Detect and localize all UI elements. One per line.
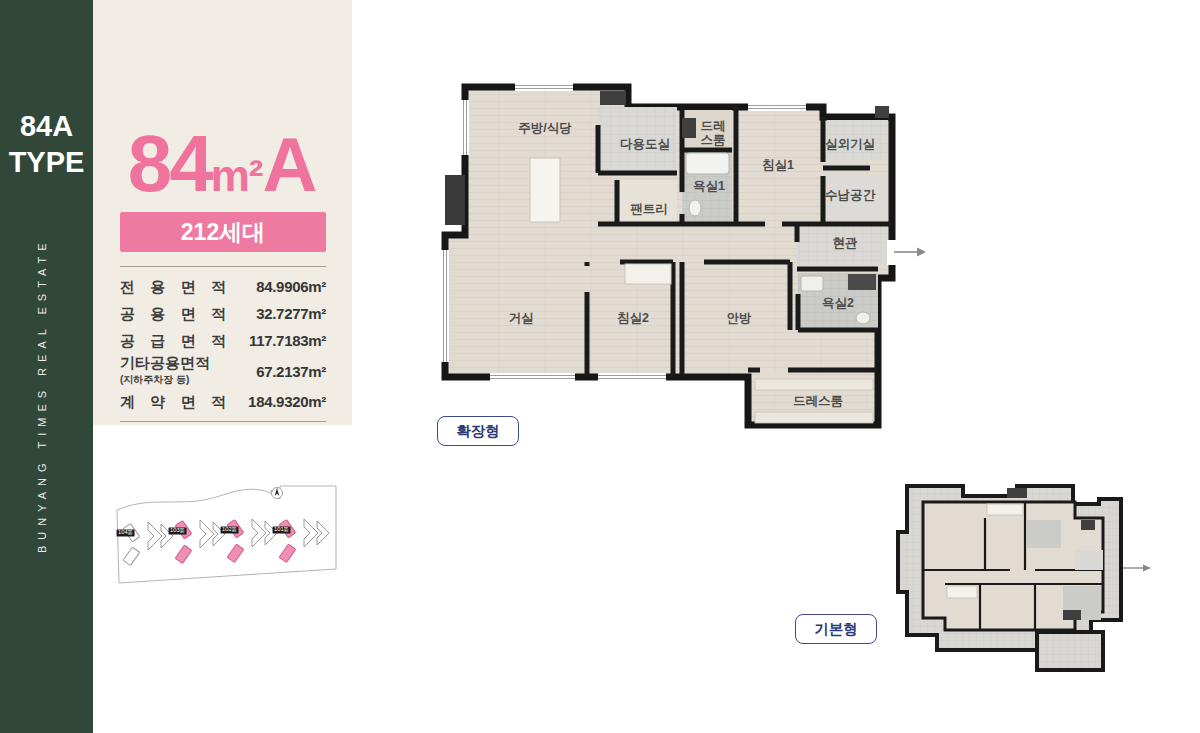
entrance-arrow-icon bbox=[894, 248, 926, 257]
room-label-kitchen: 주방/식당 bbox=[518, 120, 571, 137]
type-label: 84A TYPE bbox=[0, 108, 93, 180]
basic-type-tag[interactable]: 기본형 bbox=[795, 614, 877, 644]
building-badge: 102동 bbox=[221, 526, 239, 533]
room-label-dress-bottom: 드레스룸 bbox=[793, 393, 843, 410]
kitchen-island bbox=[530, 158, 560, 222]
type-label-line2: TYPE bbox=[0, 144, 93, 180]
room-label-living: 거실 bbox=[509, 310, 534, 327]
basic-bath1 bbox=[1027, 520, 1061, 548]
extended-floor-plan: 주방/식당 다용도실 드레스룸 침실1 실외기실 욕실1 팬트리 수납공간 현관… bbox=[430, 80, 930, 430]
area-label: 공 용 면 적 bbox=[120, 306, 226, 322]
window bbox=[748, 103, 806, 111]
window bbox=[490, 373, 575, 381]
sidebar: 84A TYPE BUNYANG TIMES REAL ESTATE bbox=[0, 0, 93, 733]
area-value: 67.2137m² bbox=[226, 363, 326, 380]
window bbox=[515, 83, 573, 91]
room-label-dress-top: 드레스룸 bbox=[695, 119, 731, 147]
bathtub bbox=[686, 153, 729, 174]
room-label-bed2: 침실2 bbox=[617, 310, 649, 327]
room-label-bath1: 욕실1 bbox=[693, 178, 725, 195]
extended-floor-plan-drawing bbox=[430, 80, 930, 430]
building-badge: 104동 bbox=[117, 529, 135, 536]
area-sublabel: (지하주차장 등) bbox=[120, 372, 226, 388]
window bbox=[441, 250, 449, 362]
bed2-closet bbox=[625, 264, 671, 284]
area-row-other-common: 기타공용면적 (지하주차장 등) 67.2137m² bbox=[120, 354, 326, 388]
info-panel: 84m²A 212세대 전 용 면 적 84.9906m² 공 용 면 적 32… bbox=[93, 0, 352, 425]
plan-title-number: 84 bbox=[128, 119, 211, 208]
units-badge: 212세대 bbox=[120, 212, 326, 252]
basic-closet bbox=[947, 586, 977, 598]
building-badge: 101동 bbox=[273, 526, 291, 533]
annex-block bbox=[1037, 632, 1103, 670]
room-label-entrance: 현관 bbox=[833, 235, 858, 252]
basic-floor-plan bbox=[885, 472, 1170, 677]
room-label-utility: 다용도실 bbox=[620, 136, 670, 153]
room-label-bed1: 침실1 bbox=[762, 157, 794, 174]
plan-title: 84m²A bbox=[93, 118, 352, 210]
window bbox=[598, 373, 666, 381]
room-label-pantry: 팬트리 bbox=[630, 201, 668, 218]
basic-entrance bbox=[1075, 550, 1103, 570]
toilet bbox=[689, 200, 701, 216]
area-value: 84.9906m² bbox=[226, 278, 326, 295]
area-value: 117.7183m² bbox=[226, 332, 326, 349]
page: 84A TYPE BUNYANG TIMES REAL ESTATE 84m²A… bbox=[0, 0, 1200, 733]
area-table: 전 용 면 적 84.9906m² 공 용 면 적 32.7277m² 공 급 … bbox=[120, 266, 326, 422]
plan-title-unit: m² bbox=[211, 151, 263, 200]
site-plan-map bbox=[105, 476, 345, 596]
area-row-contract: 계 약 면 적 184.9320m² bbox=[120, 388, 326, 415]
area-label: 계 약 면 적 bbox=[120, 394, 226, 410]
area-row-common: 공 용 면 적 32.7277m² bbox=[120, 300, 326, 327]
area-row-exclusive: 전 용 면 적 84.9906m² bbox=[120, 273, 326, 300]
area-row-supply: 공 급 면 적 117.7183m² bbox=[120, 327, 326, 354]
entrance-arrow-icon bbox=[1123, 565, 1151, 572]
area-label: 공 급 면 적 bbox=[120, 333, 226, 349]
bath2-toilet bbox=[856, 312, 870, 324]
bath2-sink bbox=[801, 276, 823, 291]
basic-closet bbox=[987, 504, 1023, 515]
room-label-storage: 수납공간 bbox=[825, 187, 875, 204]
area-value: 32.7277m² bbox=[226, 305, 326, 322]
dressroom-wardrobe bbox=[755, 412, 873, 423]
site-plan: 104동 103동 102동 101동 bbox=[105, 476, 345, 596]
site-boundary bbox=[117, 486, 336, 583]
area-value: 184.9320m² bbox=[226, 393, 326, 410]
room-label-bath2: 욕실2 bbox=[822, 295, 854, 312]
basic-floor-plan-drawing bbox=[885, 472, 1170, 677]
area-label: 전 용 면 적 bbox=[120, 279, 226, 295]
window bbox=[461, 100, 469, 155]
plan-title-suffix: A bbox=[262, 122, 317, 207]
area-label: 기타공용면적 bbox=[120, 355, 226, 371]
room-label-master: 안방 bbox=[727, 310, 752, 327]
dressroom-wardrobe bbox=[755, 379, 873, 390]
building-badge: 103동 bbox=[169, 527, 187, 534]
extended-type-tag[interactable]: 확장형 bbox=[437, 416, 519, 446]
type-label-line1: 84A bbox=[0, 108, 93, 144]
room-label-outdoor-unit: 실외기실 bbox=[825, 136, 875, 153]
brand-vertical-text: BUNYANG TIMES REAL ESTATE bbox=[36, 263, 48, 553]
